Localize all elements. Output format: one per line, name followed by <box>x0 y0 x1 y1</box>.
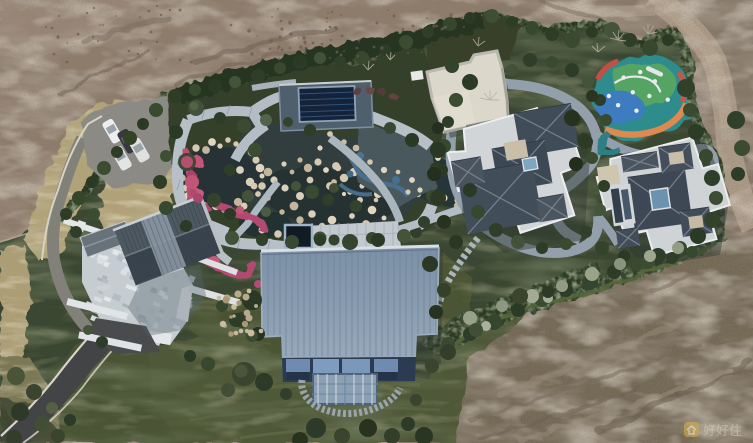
svg-text:好好住: 好好住 <box>703 423 742 438</box>
